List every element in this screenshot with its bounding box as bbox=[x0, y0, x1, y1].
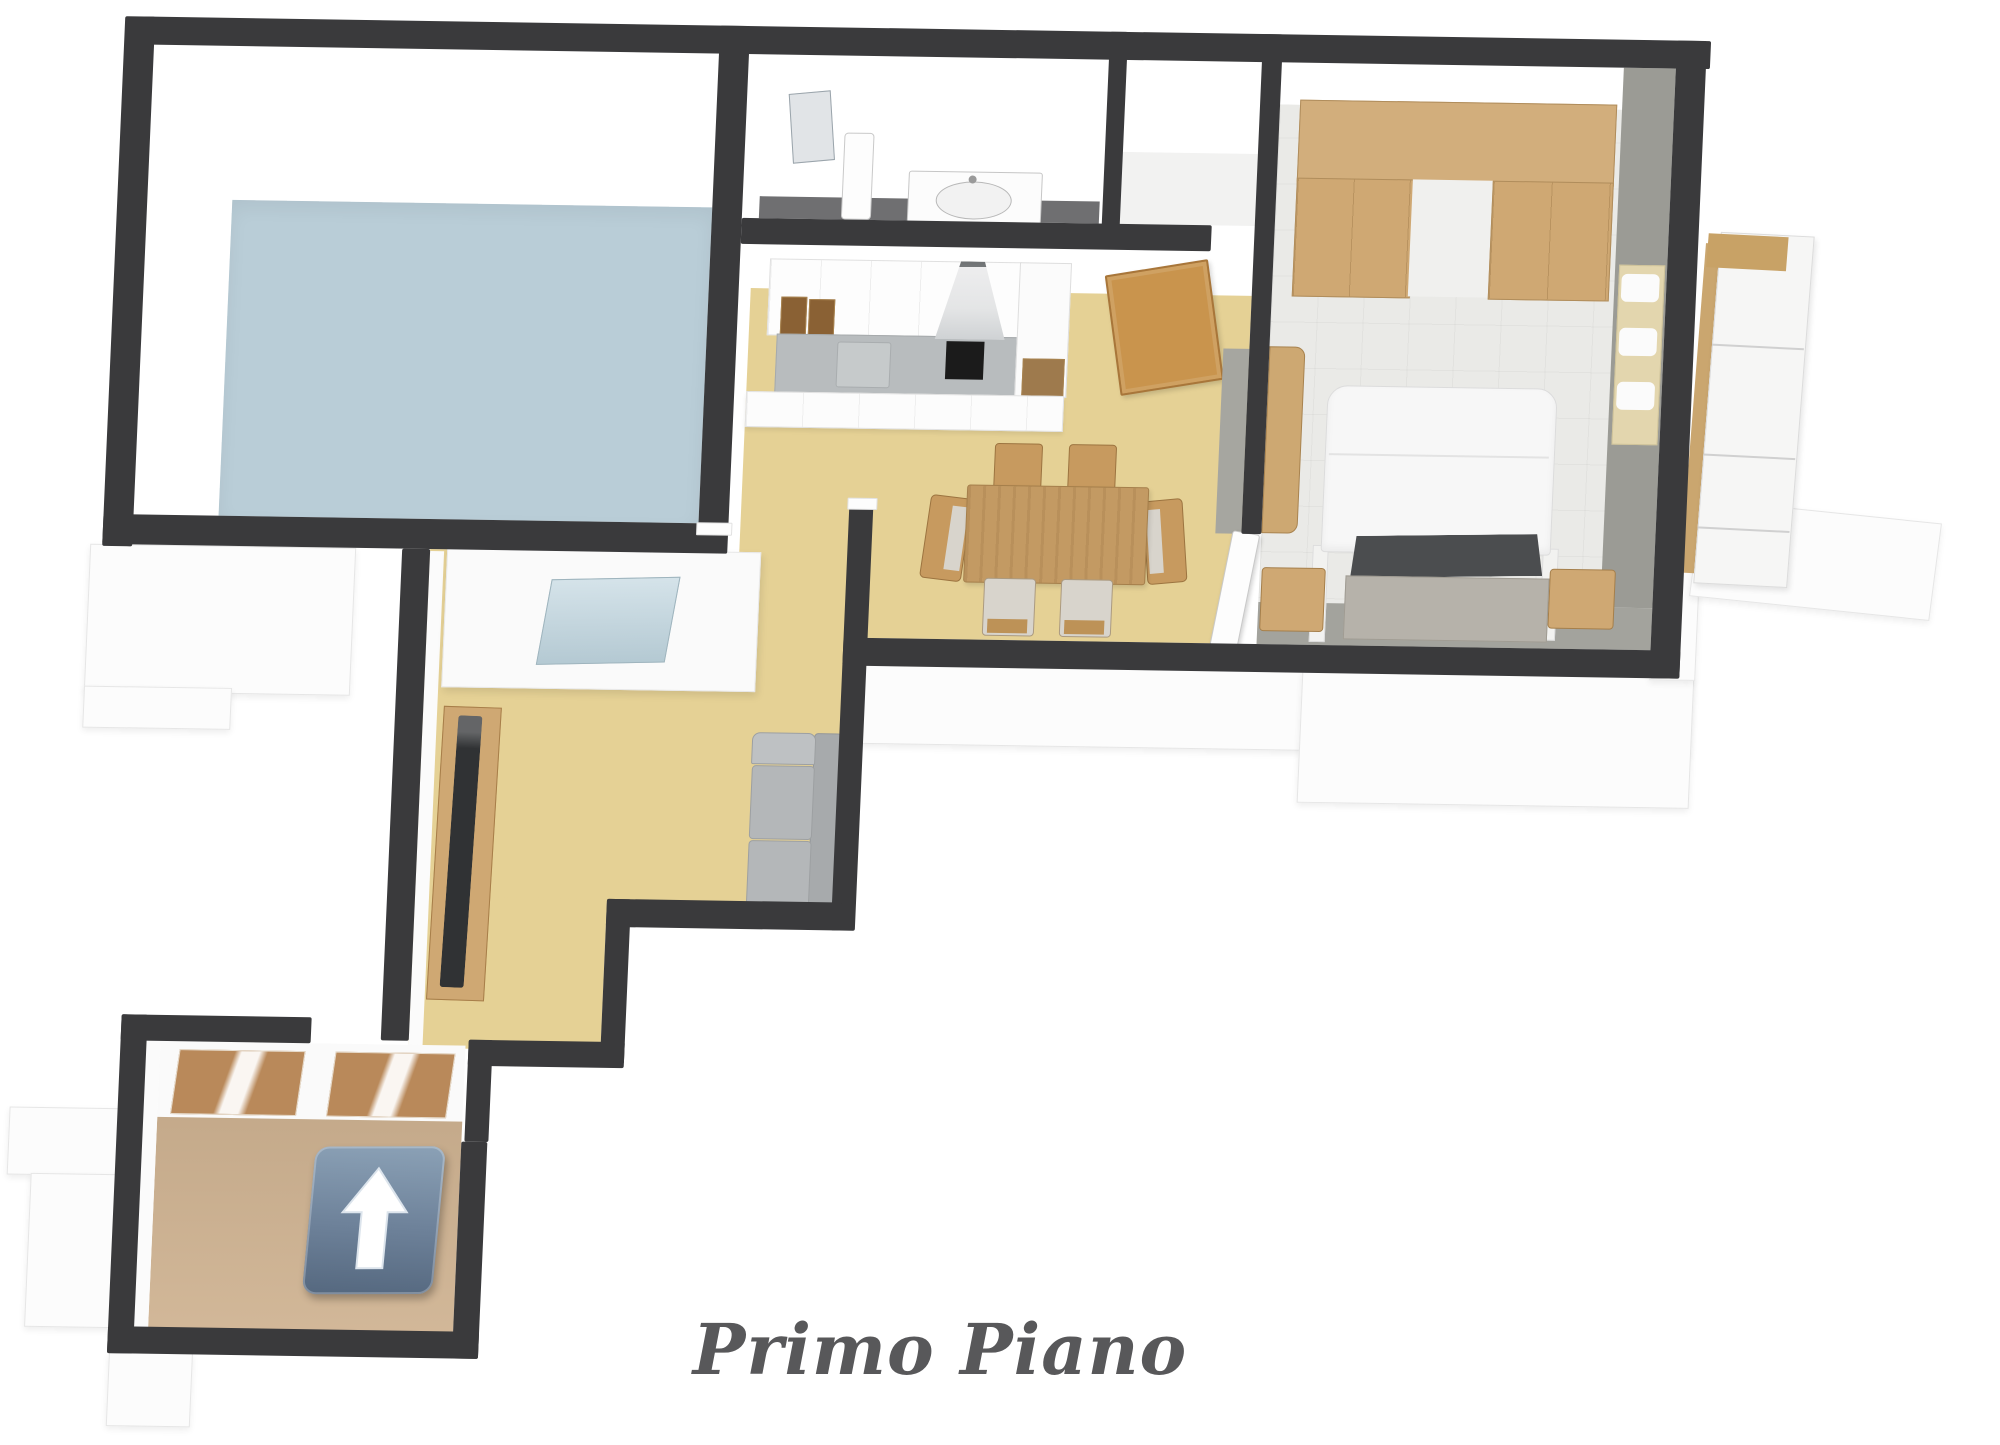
exterior-landing-below-hall bbox=[106, 1352, 193, 1427]
radiator-slat-1 bbox=[1621, 274, 1660, 303]
radiator bbox=[1611, 265, 1665, 446]
balcony-floor-corner bbox=[1706, 233, 1788, 271]
dining-chair-right bbox=[1142, 498, 1187, 585]
stair-tread-2 bbox=[326, 1052, 456, 1119]
chair-frame bbox=[987, 619, 1028, 634]
wardrobe-left-column bbox=[1292, 178, 1415, 299]
exterior-slab-step bbox=[82, 686, 232, 730]
wall-cap-storage-right bbox=[696, 522, 733, 536]
open-door-tan bbox=[1105, 259, 1224, 396]
bed-base bbox=[1343, 575, 1550, 642]
sofa-armrest bbox=[751, 732, 816, 765]
kitchen-sink bbox=[835, 341, 891, 388]
up-arrow-icon bbox=[302, 1146, 446, 1294]
sofa-cushion-1 bbox=[749, 765, 815, 840]
up-arrow-sign bbox=[302, 1146, 446, 1294]
bed-headboard bbox=[1350, 534, 1543, 578]
closet-floor-shade bbox=[1120, 152, 1258, 226]
wardrobe-top bbox=[1297, 100, 1618, 187]
wall-cap-living-right bbox=[847, 498, 878, 510]
kitchen-base-cabinets bbox=[745, 391, 1065, 432]
radiator-slat-2 bbox=[1618, 328, 1657, 357]
stairwell-skylight-glass bbox=[536, 577, 681, 665]
storage-room-floor bbox=[219, 200, 713, 523]
exterior-slab-bottom-right bbox=[1297, 671, 1695, 809]
kitchen-mini-cabinet-1 bbox=[780, 297, 808, 335]
floorplan bbox=[0, 0, 2000, 1445]
sofa bbox=[745, 732, 841, 913]
pedestal-sink bbox=[841, 133, 875, 220]
bed-mattress bbox=[1321, 385, 1558, 556]
kitchen-end-cabinet-wood bbox=[1021, 358, 1065, 399]
wardrobe-right-column bbox=[1488, 181, 1614, 302]
wall-corridor-right bbox=[464, 1040, 492, 1142]
chair-frame bbox=[1064, 620, 1105, 635]
nightstand-left bbox=[1259, 567, 1326, 632]
exterior-landing-left-2 bbox=[24, 1173, 121, 1328]
floor-caption: Primo Piano bbox=[690, 1308, 1190, 1391]
stair-tread-1 bbox=[170, 1049, 306, 1116]
kitchen-counter bbox=[774, 333, 1024, 397]
cooktop bbox=[945, 341, 985, 380]
shower-glass bbox=[789, 90, 835, 163]
kitchen-mini-cabinet-2 bbox=[808, 299, 836, 337]
exterior-landing-left-1 bbox=[7, 1107, 122, 1177]
chair-seat bbox=[1146, 509, 1164, 574]
dining-chair-bottom-1 bbox=[982, 578, 1037, 637]
exterior-slab-left-of-storage bbox=[84, 544, 356, 696]
wall-living-bottom bbox=[606, 899, 842, 931]
floorplan-canvas: Primo Piano bbox=[0, 0, 2000, 1445]
radiator-slat-3 bbox=[1616, 382, 1655, 411]
nightstand-right bbox=[1547, 569, 1616, 630]
dining-chair-bottom-2 bbox=[1059, 579, 1114, 638]
wall-hall-top bbox=[121, 1014, 312, 1043]
dining-table bbox=[963, 484, 1149, 585]
wardrobe-gap-floor bbox=[1408, 179, 1493, 297]
